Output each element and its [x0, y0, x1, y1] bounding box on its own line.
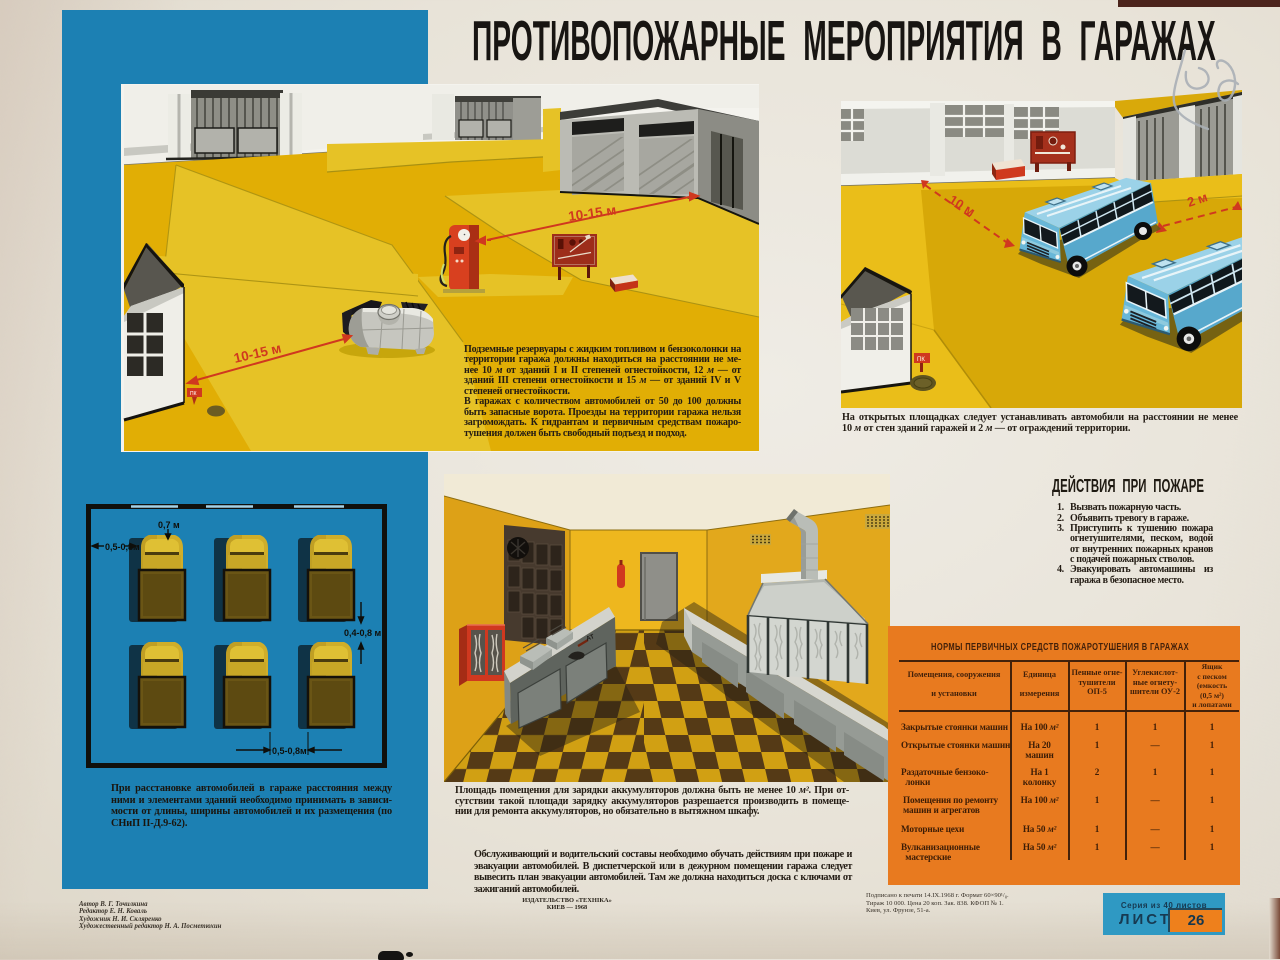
svg-text:ПК: ПК	[190, 391, 197, 397]
svg-text:0,5-0,8м: 0,5-0,8м	[272, 746, 307, 756]
svg-text:0,4-0,8 м: 0,4-0,8 м	[344, 628, 382, 638]
svg-text:ПК: ПК	[917, 357, 925, 363]
svg-text:0,7 м: 0,7 м	[158, 520, 180, 530]
